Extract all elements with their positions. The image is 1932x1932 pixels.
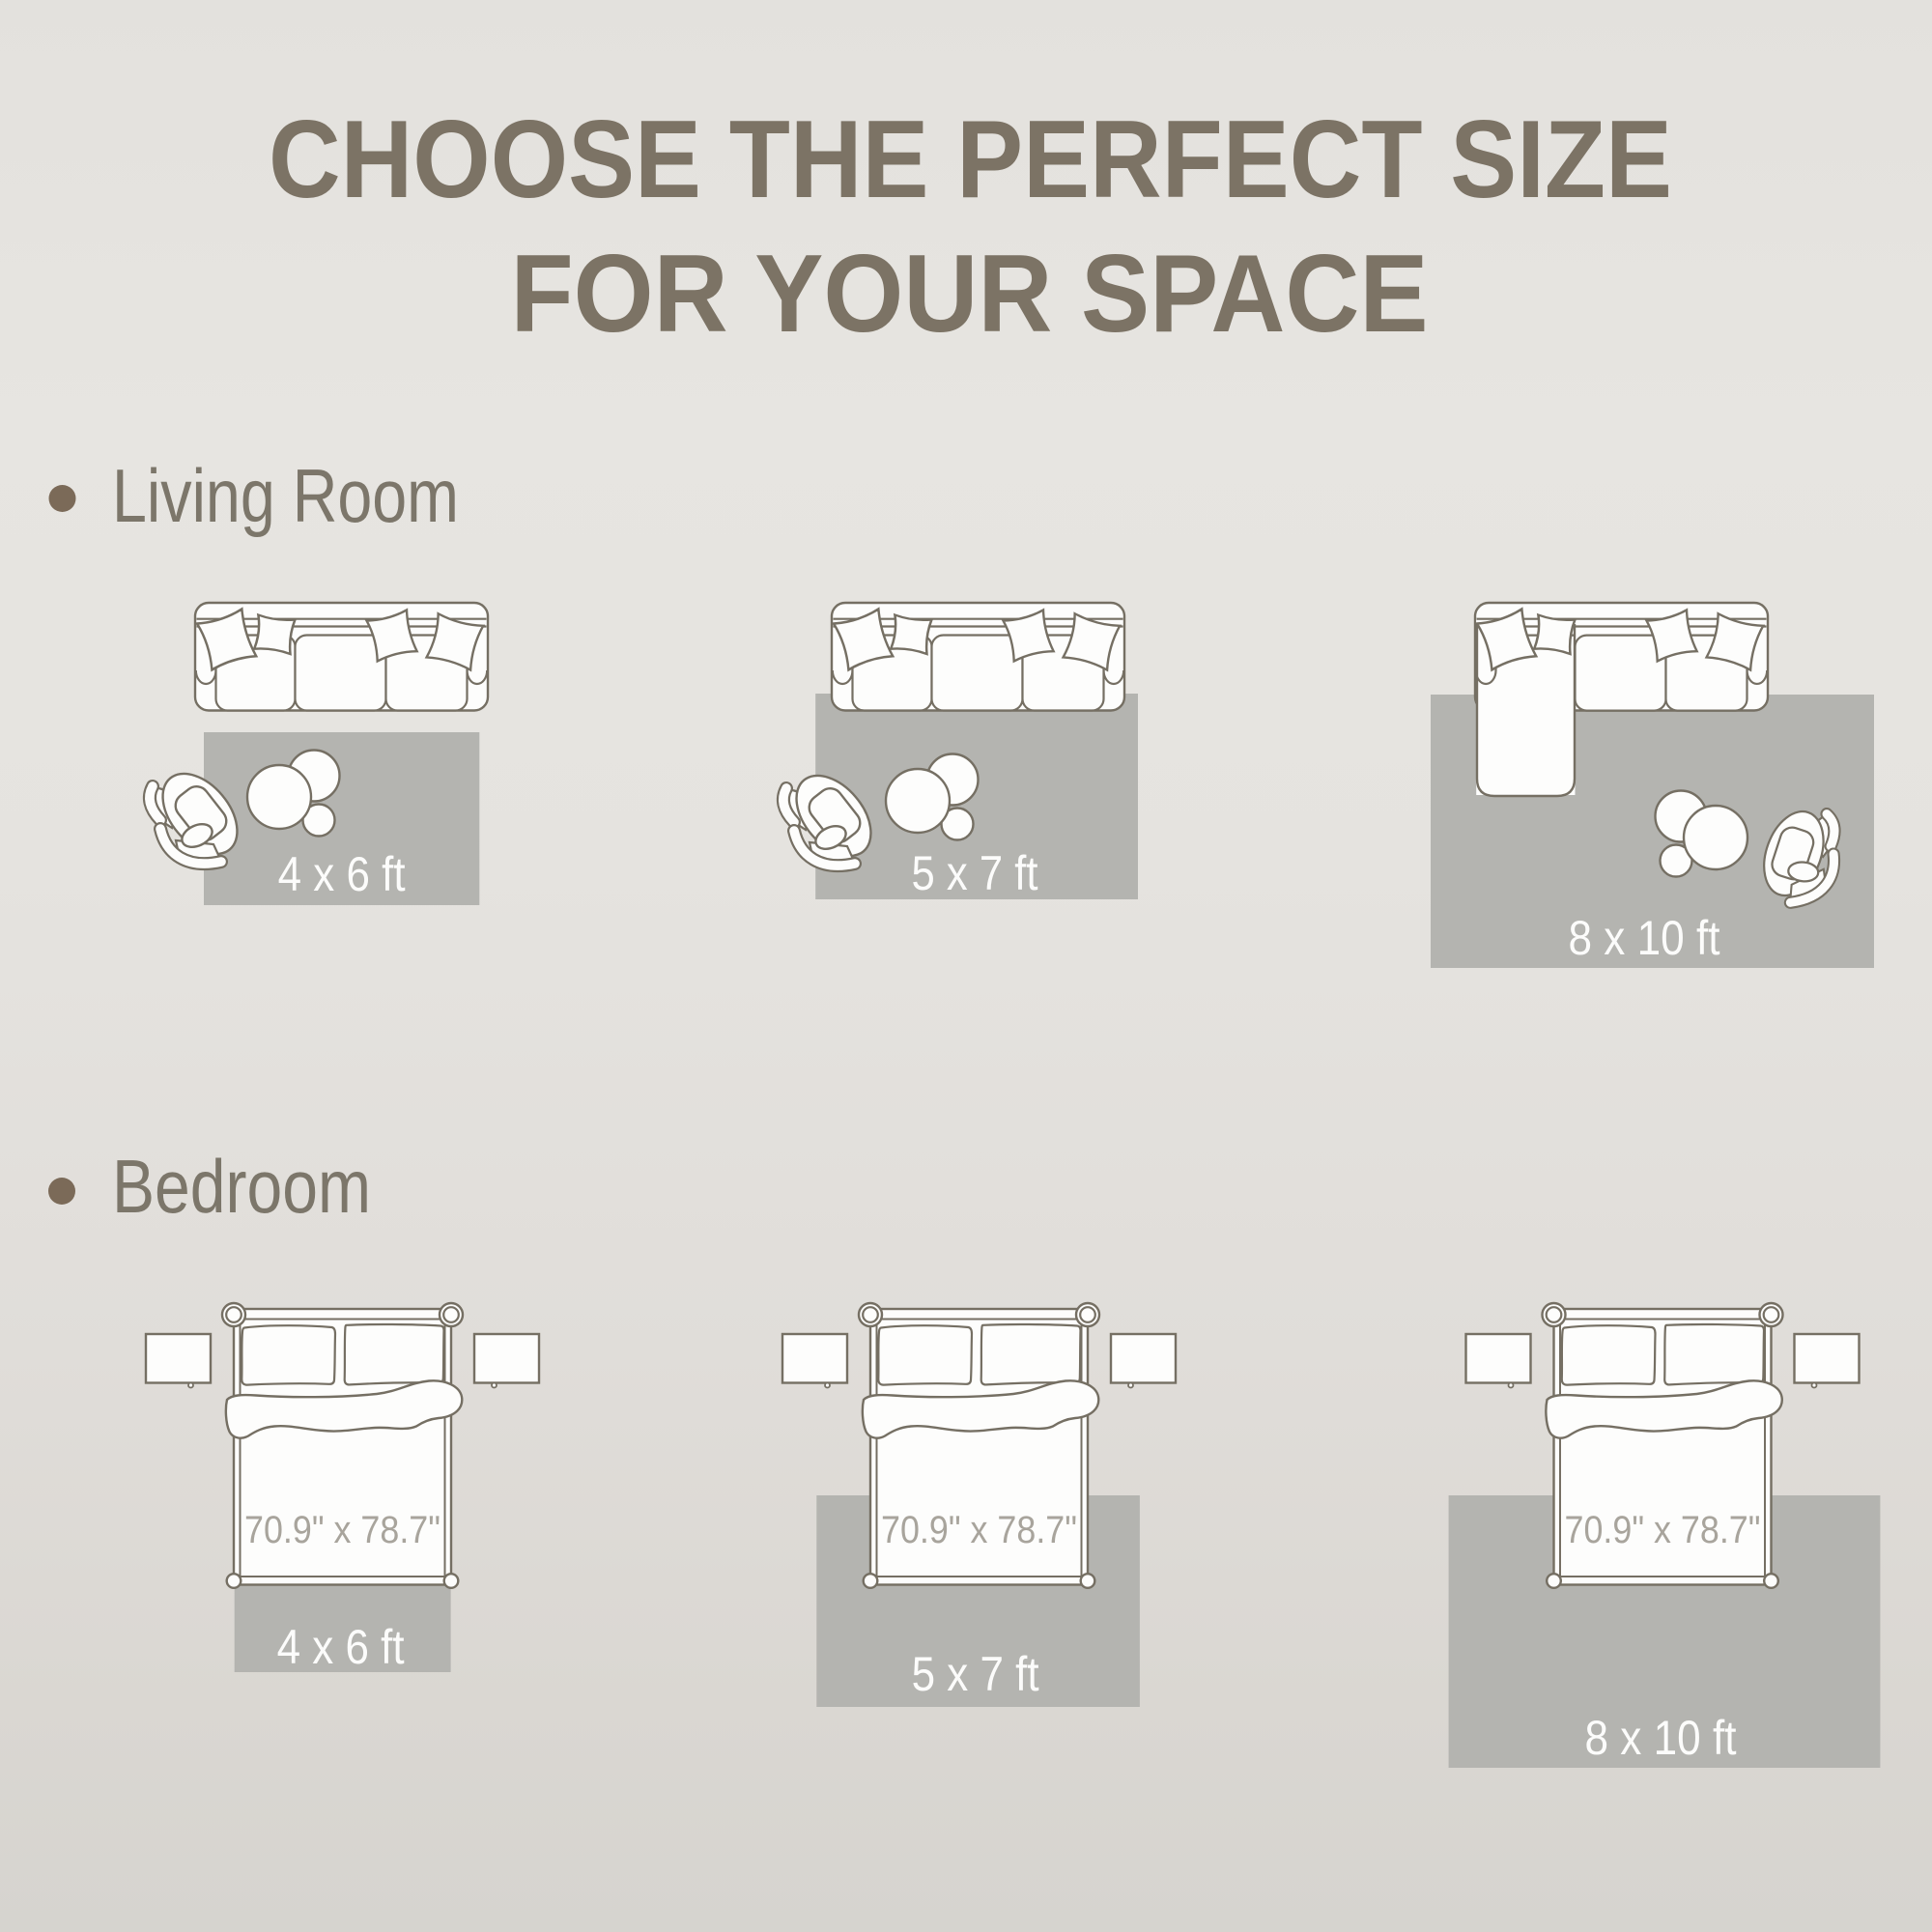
- svg-text:CHOOSE THE PERFECT SIZE: CHOOSE THE PERFECT SIZE: [269, 99, 1672, 221]
- svg-text:8 x 10 ft: 8 x 10 ft: [1569, 911, 1720, 965]
- svg-text:Living Room: Living Room: [112, 453, 459, 538]
- svg-text:FOR YOUR SPACE: FOR YOUR SPACE: [511, 233, 1429, 355]
- svg-text:4 x 6 ft: 4 x 6 ft: [278, 847, 406, 901]
- svg-text:5 x 7 ft: 5 x 7 ft: [912, 846, 1038, 900]
- svg-text:8 x 10 ft: 8 x 10 ft: [1585, 1711, 1737, 1765]
- svg-text:5 x 7 ft: 5 x 7 ft: [912, 1647, 1039, 1701]
- svg-text:Bedroom: Bedroom: [112, 1144, 371, 1229]
- svg-text:4 x 6 ft: 4 x 6 ft: [277, 1620, 405, 1674]
